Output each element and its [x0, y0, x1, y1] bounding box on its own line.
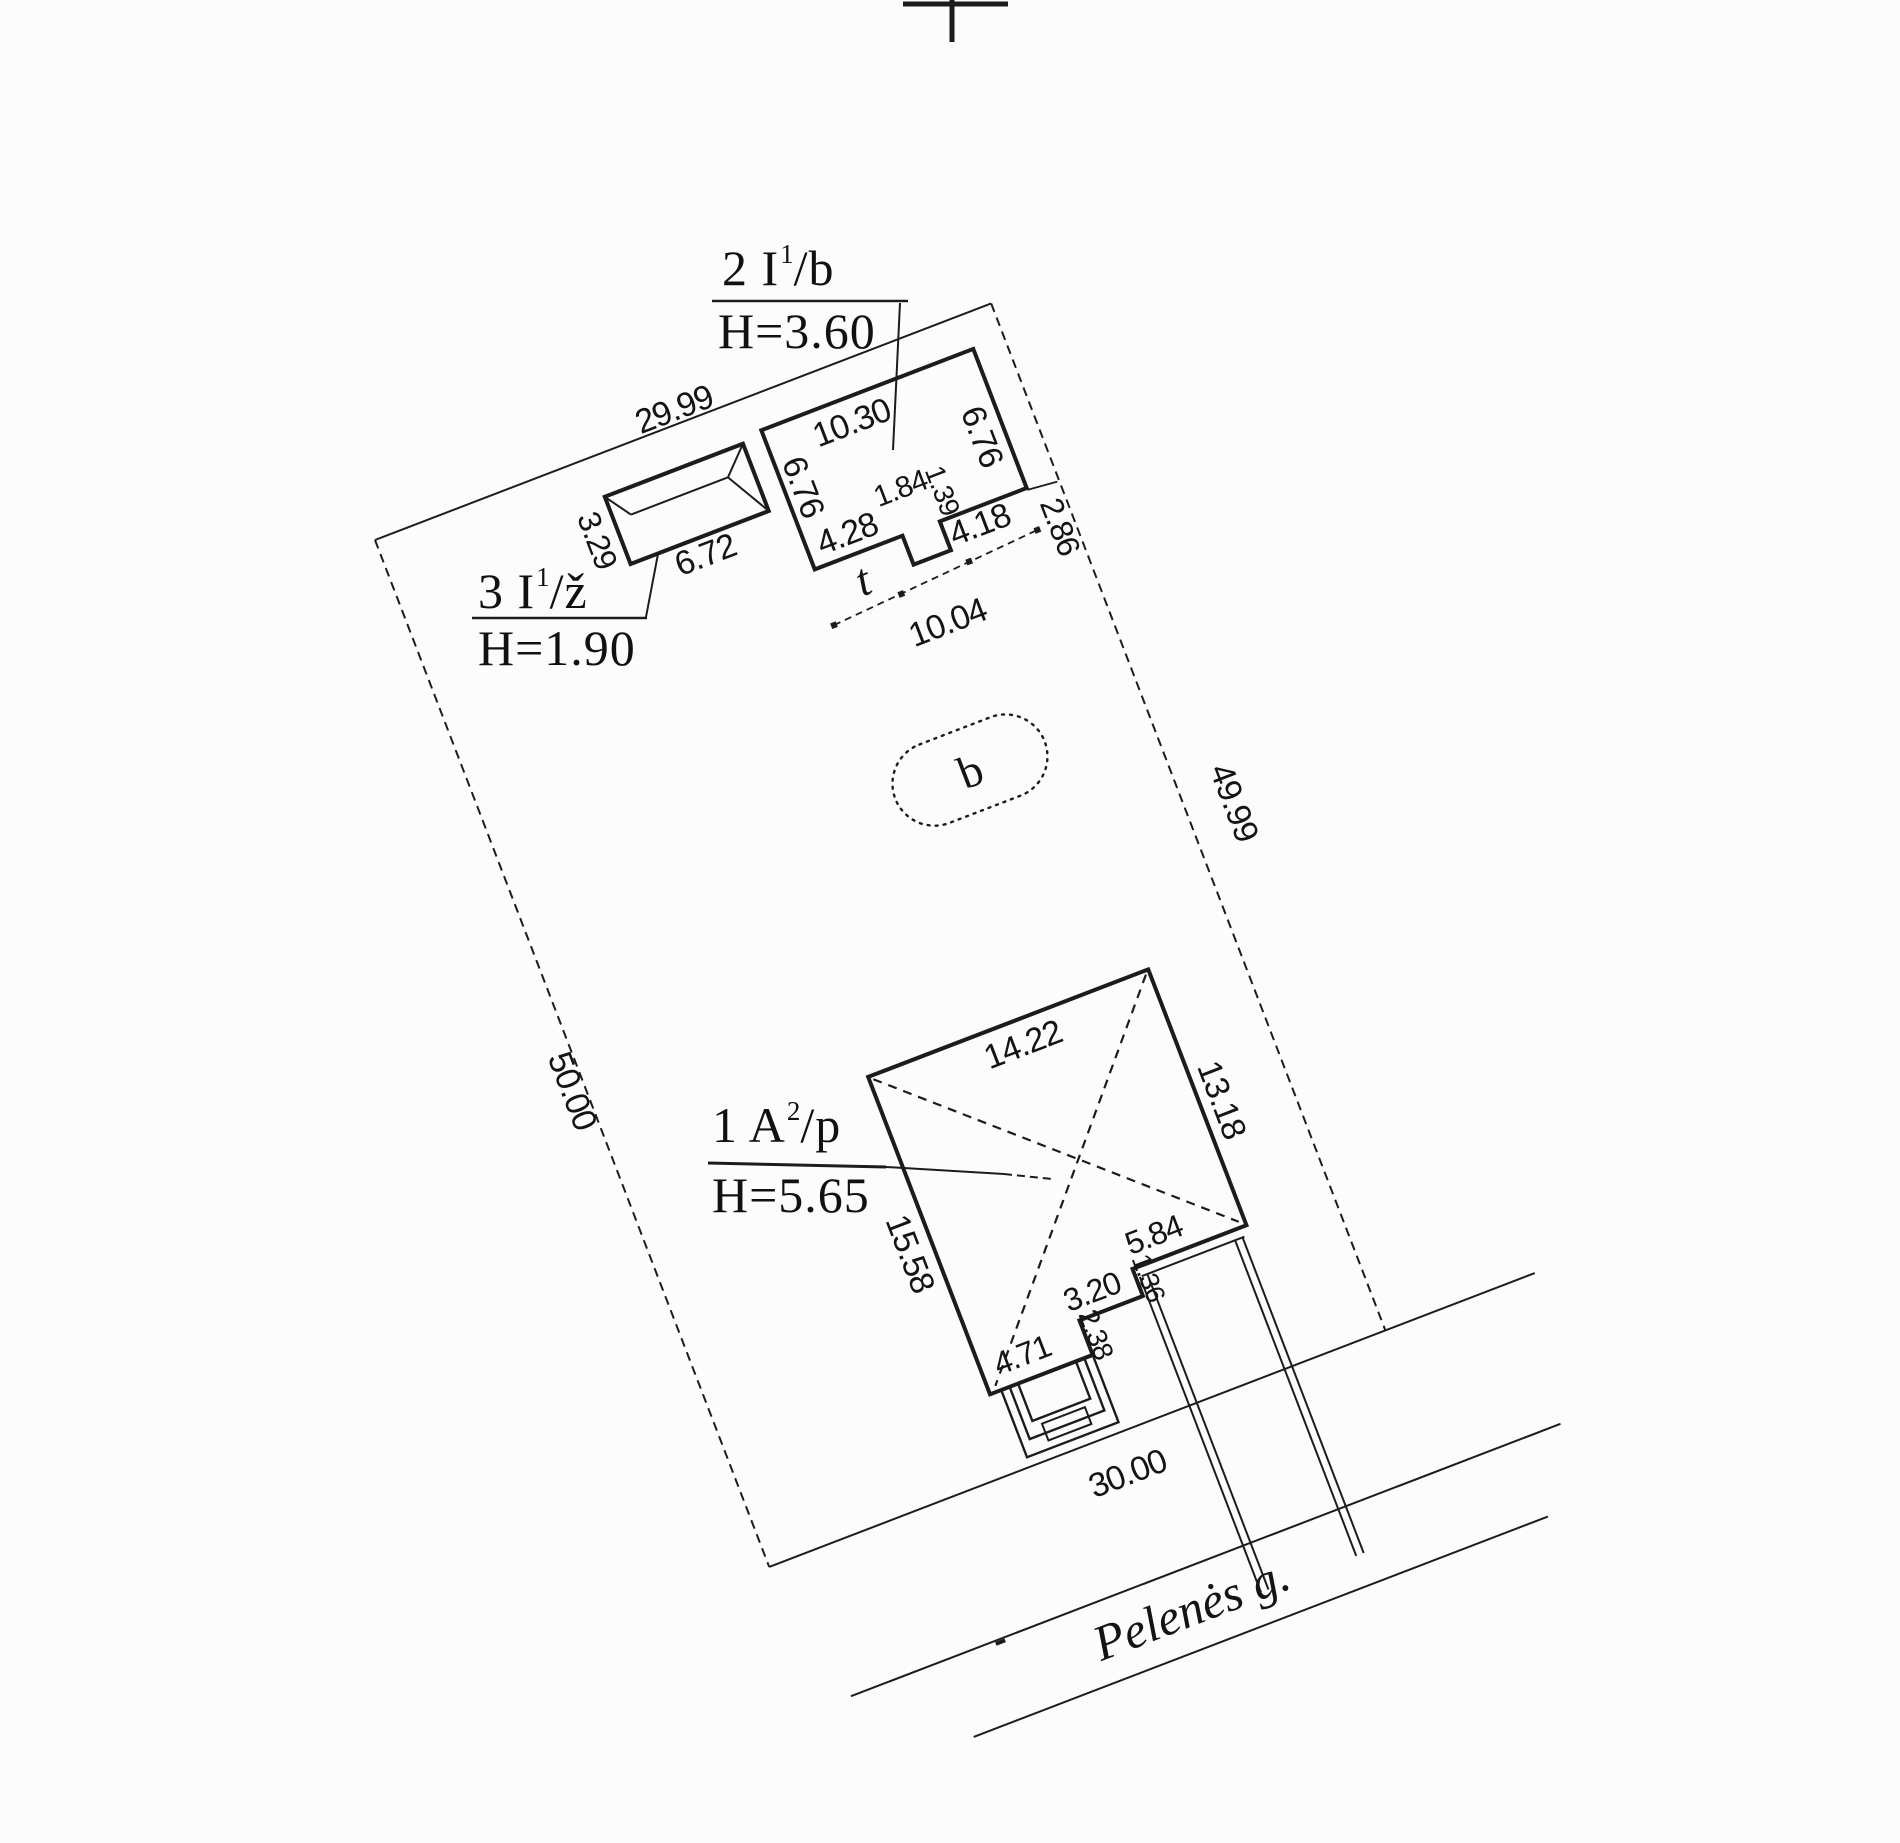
dimension-label: 15.58 — [877, 1210, 942, 1299]
building-1-code-label: 1 A2/p — [712, 1100, 841, 1150]
building-2-code-suffix: /b — [794, 240, 835, 296]
plot-boundary-right — [991, 303, 1385, 1330]
building-1-code: 1 A — [712, 1097, 786, 1153]
plot-linework — [246, 88, 1828, 1843]
dimension-label: 6.76 — [773, 451, 832, 523]
plot-boundary-bottom — [769, 1273, 1535, 1567]
dimension-label: 30.00 — [1083, 1442, 1172, 1507]
dimension-label: 6.72 — [670, 526, 742, 585]
dimension-label: 50.00 — [539, 1047, 604, 1136]
building-3-leader-line — [646, 554, 658, 617]
dimension-label: Pelenės g. — [1085, 1545, 1298, 1673]
dimension-label: 29.99 — [630, 378, 719, 443]
building-2-tie-line — [1027, 479, 1057, 493]
walkway-lines — [1140, 1237, 1364, 1592]
building-1-height-label: H=5.65 — [712, 1170, 870, 1220]
building-2-code: 2 I — [722, 240, 779, 296]
dimension-label: 49.99 — [1201, 759, 1266, 848]
dimension-label: b — [950, 742, 990, 800]
building-1-diagonal-2 — [877, 975, 1264, 1386]
dimension-label: 1.39 — [918, 461, 966, 520]
dimension-label: 13.18 — [1188, 1056, 1253, 1145]
dimension-label: 10.30 — [807, 391, 896, 456]
site-plan-canvas: 29.9949.9950.0030.0010.306.766.764.281.8… — [0, 0, 1900, 1843]
building-2-code-sup: 1 — [780, 239, 795, 269]
building-1-code-sup: 2 — [787, 1096, 802, 1126]
building-2-code-label: 2 I1/b — [722, 243, 835, 293]
dimension-label: 4.71 — [988, 1328, 1056, 1383]
building-3-code: 3 I — [478, 563, 535, 619]
building-3-code-label: 3 I1/ž — [478, 566, 588, 616]
dimension-label: t — [847, 553, 878, 607]
dimension-label: 4.28 — [811, 505, 883, 564]
dimension-label: 14.22 — [979, 1013, 1068, 1078]
dimension-label: 1.36 — [1125, 1250, 1171, 1306]
building-1-code-suffix: /p — [800, 1097, 841, 1153]
building-3-code-suffix: /ž — [550, 563, 588, 619]
building-1-leader-line — [886, 1167, 1004, 1174]
north-reference-cross — [903, 0, 1008, 42]
screen-linework — [0, 0, 1900, 1843]
dimension-label: 2.38 — [1072, 1305, 1120, 1364]
building-3-height-label: H=1.90 — [478, 623, 636, 673]
dimension-label: 10.04 — [904, 591, 993, 656]
street-survey-dot — [995, 1638, 1006, 1645]
dimension-label: 6.76 — [952, 401, 1011, 473]
street-edge-line-1 — [851, 1424, 1561, 1696]
dimension-label: 2.86 — [1032, 493, 1087, 561]
building-1-leader-dashed — [1004, 1174, 1052, 1179]
building-2-height-label: H=3.60 — [718, 306, 876, 356]
building-3-code-sup: 1 — [536, 562, 551, 592]
building-1-outline — [868, 969, 1270, 1394]
